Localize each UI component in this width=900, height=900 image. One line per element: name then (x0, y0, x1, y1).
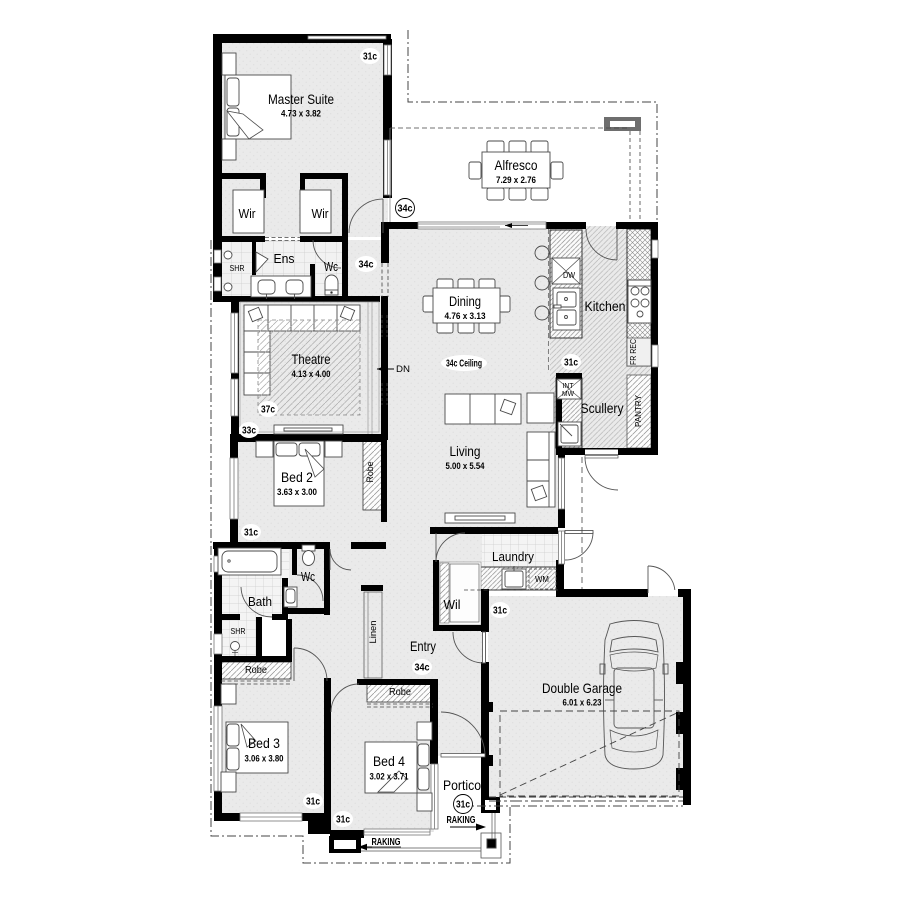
svg-text:SHR: SHR (230, 264, 245, 273)
svg-text:WM: WM (535, 575, 549, 584)
svg-text:7.29 x 2.76: 7.29 x 2.76 (496, 175, 536, 185)
svg-text:Bed 3: Bed 3 (248, 735, 280, 751)
svg-text:31c: 31c (336, 815, 350, 826)
svg-text:Ens: Ens (274, 251, 295, 266)
svg-text:Bath: Bath (248, 594, 272, 609)
svg-text:Entry: Entry (410, 638, 436, 654)
svg-text:5.00 x 5.54: 5.00 x 5.54 (446, 461, 485, 471)
svg-text:31c: 31c (456, 800, 470, 811)
svg-text:INT: INT (563, 383, 575, 390)
svg-text:FR REC: FR REC (629, 339, 638, 365)
svg-text:Wil: Wil (444, 597, 461, 612)
svg-text:Bed 2: Bed 2 (281, 469, 313, 485)
svg-text:6.01 x 6.23: 6.01 x 6.23 (563, 698, 602, 708)
svg-text:Linen: Linen (368, 621, 379, 644)
svg-text:DN: DN (396, 364, 410, 375)
svg-text:Scullery: Scullery (581, 400, 624, 416)
svg-text:34c: 34c (398, 204, 413, 215)
svg-text:RAKING: RAKING (372, 837, 401, 848)
svg-text:31c: 31c (306, 797, 320, 808)
svg-text:34c: 34c (415, 663, 430, 674)
svg-text:31c: 31c (564, 358, 578, 369)
svg-text:PANTRY: PANTRY (634, 394, 643, 427)
svg-text:Bed 4: Bed 4 (373, 753, 405, 769)
svg-text:RAKING: RAKING (447, 815, 476, 826)
svg-text:4.73 x 3.82: 4.73 x 3.82 (281, 109, 321, 119)
svg-text:4.13 x 4.00: 4.13 x 4.00 (292, 369, 331, 379)
svg-text:Robe: Robe (389, 686, 411, 698)
svg-text:4.76 x 3.13: 4.76 x 3.13 (445, 311, 486, 321)
svg-text:31c: 31c (363, 52, 377, 63)
svg-text:Wc: Wc (301, 569, 315, 584)
svg-text:31c: 31c (493, 606, 507, 617)
svg-text:31c: 31c (244, 528, 258, 539)
svg-text:3.02 x 3.71: 3.02 x 3.71 (370, 772, 409, 782)
svg-text:DW: DW (563, 271, 575, 280)
svg-text:34c Ceiling: 34c Ceiling (446, 359, 482, 370)
svg-text:34c: 34c (359, 260, 374, 271)
svg-text:MW: MW (562, 391, 574, 398)
svg-text:Wc: Wc (324, 259, 338, 274)
svg-text:33c: 33c (242, 426, 256, 437)
svg-text:Wir: Wir (312, 206, 330, 221)
svg-text:Alfresco: Alfresco (495, 157, 538, 173)
svg-text:Theatre: Theatre (292, 351, 331, 367)
svg-text:Kitchen: Kitchen (585, 298, 626, 314)
svg-text:Living: Living (450, 443, 481, 459)
svg-text:Dining: Dining (449, 293, 481, 309)
svg-text:Master Suite: Master Suite (268, 91, 334, 107)
svg-text:Double Garage: Double Garage (542, 680, 622, 696)
svg-text:3.06 x 3.80: 3.06 x 3.80 (245, 754, 284, 764)
svg-text:Wir: Wir (239, 206, 257, 221)
svg-text:Robe: Robe (245, 664, 267, 676)
svg-text:SHR: SHR (231, 627, 246, 636)
svg-text:Laundry: Laundry (492, 549, 534, 564)
svg-text:Robe: Robe (365, 462, 376, 483)
svg-text:37c: 37c (261, 405, 275, 416)
svg-text:Portico: Portico (443, 777, 481, 793)
svg-text:3.63 x 3.00: 3.63 x 3.00 (277, 487, 317, 497)
